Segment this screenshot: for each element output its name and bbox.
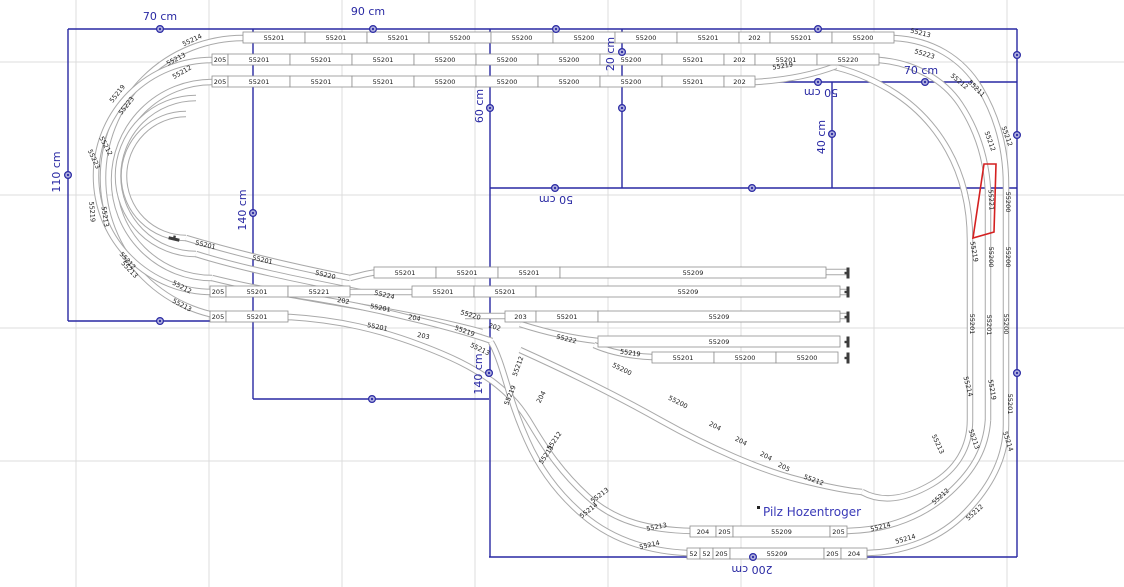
track-piece-label: 55209 (709, 338, 730, 346)
track-piece-label: 55201 (968, 314, 976, 335)
track-piece-label: 55201 (247, 288, 268, 296)
dimension-handle-dot (1016, 134, 1018, 136)
dimension-handle-dot (924, 81, 926, 83)
track-piece-label: 55200 (1004, 247, 1012, 268)
track-piece-label: 55201 (791, 34, 812, 42)
track-piece-label: 55200 (797, 354, 818, 362)
dimension-label: 140 cm (236, 189, 249, 230)
dimension-handle-dot (372, 28, 374, 30)
dimension-handle-dot (67, 174, 69, 176)
track-piece-label: 55220 (838, 56, 859, 64)
track-piece-label: 55201 (683, 56, 704, 64)
track-piece-label: 205 (214, 56, 226, 64)
track-piece-label: 55209 (709, 313, 730, 321)
track-piece-label: 205 (212, 288, 224, 296)
track-piece-label: 202 (733, 56, 745, 64)
dimension-handle-dot (488, 372, 490, 374)
track-piece-label: 55200 (621, 78, 642, 86)
track-piece-label: 205 (718, 528, 730, 536)
track-plan-drawing[interactable]: 5520155201552015520055200552005520055201… (0, 0, 1124, 587)
dimension-handle-dot (831, 133, 833, 135)
track-piece-label: 204 (697, 528, 709, 536)
plan-annotation-text[interactable]: Pilz Hozentroger (763, 505, 861, 519)
track-piece-label: 55200 (574, 34, 595, 42)
bumper-icon (845, 341, 849, 343)
track-piece-label: 55201 (495, 288, 516, 296)
bumper-icon (845, 291, 849, 293)
dimension-handle-dot (252, 212, 254, 214)
track-piece-label: 55200 (1002, 314, 1010, 335)
dimension-handle-dot (752, 556, 754, 558)
dimension-label: 70 cm (143, 10, 177, 23)
dimension-handle-dot (555, 28, 557, 30)
track-piece-label: 55200 (735, 354, 756, 362)
track-piece-label: 55201 (373, 56, 394, 64)
track-piece-label: 55200 (450, 34, 471, 42)
track-piece-label: 55200 (559, 78, 580, 86)
dimension-label: 140 cm (472, 353, 485, 394)
track-piece-label: 55209 (683, 269, 704, 277)
track-piece-label: 205 (212, 313, 224, 321)
track-piece-label: 55221 (309, 288, 330, 296)
track-piece-label: 55201 (985, 315, 993, 336)
dimension-handle-dot (621, 107, 623, 109)
track-piece-label: 202 (733, 78, 745, 86)
track-piece-label: 55201 (264, 34, 285, 42)
track-piece-label: 203 (514, 313, 526, 321)
track-piece-label: 52 (689, 550, 697, 558)
dimension-label: 110 cm (50, 151, 63, 192)
dimension-label: 50 cm (539, 193, 573, 206)
track-piece-label: 55200 (1004, 192, 1012, 213)
track-piece-label: 55209 (767, 550, 788, 558)
track-piece-label: 55201 (557, 313, 578, 321)
track-piece-label: 55201 (433, 288, 454, 296)
track-piece-label: 205 (214, 78, 226, 86)
track-piece-label: 55201 (683, 78, 704, 86)
track-piece-label: 55201 (698, 34, 719, 42)
dimension-label: 20 cm (604, 37, 617, 71)
track-piece-label: 55200 (435, 78, 456, 86)
track-piece-label: 55200 (987, 247, 995, 268)
selected-track-label: 55221 (986, 189, 995, 210)
track-piece-label: 55201 (519, 269, 540, 277)
track-piece-label: 55201 (311, 78, 332, 86)
track-piece-label: 55201 (673, 354, 694, 362)
track-piece-label: 55201 (249, 78, 270, 86)
dimension-handle-dot (817, 28, 819, 30)
track-piece-label: 204 (848, 550, 860, 558)
track-piece-label: 55201 (373, 78, 394, 86)
track-piece-label: 55201 (311, 56, 332, 64)
dimension-handle-dot (554, 187, 556, 189)
track-piece-label: 55209 (678, 288, 699, 296)
track-piece-label: 55201 (1006, 394, 1014, 415)
track-piece-label: 55201 (249, 56, 270, 64)
dimension-handle-dot (1016, 54, 1018, 56)
track-piece-label: 52 (702, 550, 710, 558)
dimension-handle-dot (159, 320, 161, 322)
dimension-handle-dot (371, 398, 373, 400)
dimension-handle-dot (159, 28, 161, 30)
dimension-handle-dot (751, 187, 753, 189)
track-piece-label: 55201 (457, 269, 478, 277)
track-piece-label: 55201 (388, 34, 409, 42)
track-plan-canvas[interactable]: 5520155201552015520055200552005520055201… (0, 0, 1124, 587)
dimension-label: 200 cm (731, 563, 772, 576)
track-piece-label: 55201 (247, 313, 268, 321)
track-piece-label: 55200 (621, 56, 642, 64)
bumper-icon (845, 272, 849, 274)
track-piece-label: 205 (826, 550, 838, 558)
dimension-handle-dot (621, 51, 623, 53)
track-piece-label: 205 (715, 550, 727, 558)
track-piece-label: 55201 (326, 34, 347, 42)
track-piece-label: 55200 (497, 56, 518, 64)
bumper-icon (845, 316, 849, 318)
track-piece-label: 55200 (512, 34, 533, 42)
track-piece-label: 55200 (853, 34, 874, 42)
dimension-label: 90 cm (351, 5, 385, 18)
dimension-handle-dot (1016, 372, 1018, 374)
dimension-label: 70 cm (904, 64, 938, 77)
track-piece-label: 55200 (559, 56, 580, 64)
dimension-label: 40 cm (815, 120, 828, 154)
dimension-label: 60 cm (473, 89, 486, 123)
bumper-icon (845, 357, 849, 359)
track-piece-label: 55200 (636, 34, 657, 42)
dimension-handle-dot (489, 107, 491, 109)
track-piece-label: 55201 (395, 269, 416, 277)
dimension-label: 50 cm (804, 86, 838, 99)
dimension-handle-dot (817, 81, 819, 83)
track-piece-label: 205 (832, 528, 844, 536)
track-piece-label: 55209 (771, 528, 792, 536)
annotation-marker (757, 506, 760, 509)
track-piece-label: 55200 (435, 56, 456, 64)
track-piece-label: 202 (748, 34, 760, 42)
track-piece-label: 55200 (497, 78, 518, 86)
